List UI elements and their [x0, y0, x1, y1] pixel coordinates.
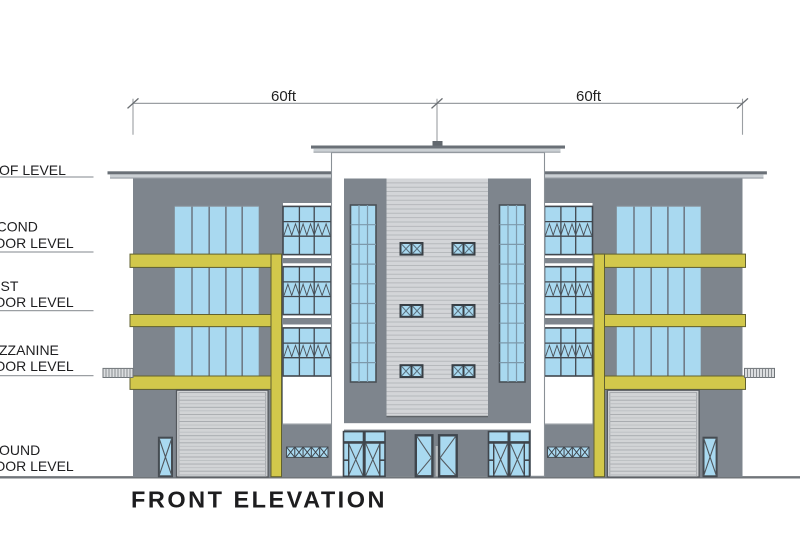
- svg-text:FIRST: FIRST: [0, 278, 19, 294]
- svg-text:FLOOR LEVEL: FLOOR LEVEL: [0, 235, 74, 251]
- svg-text:FLOOR LEVEL: FLOOR LEVEL: [0, 358, 74, 374]
- svg-text:MEZZANINE: MEZZANINE: [0, 342, 59, 358]
- svg-text:ROOF LEVEL: ROOF LEVEL: [0, 162, 66, 178]
- svg-text:SECOND: SECOND: [0, 219, 38, 235]
- svg-text:60ft: 60ft: [576, 88, 602, 105]
- svg-text:60ft: 60ft: [271, 88, 297, 105]
- svg-text:FRONT ELEVATION: FRONT ELEVATION: [131, 487, 387, 513]
- svg-text:FLOOR LEVEL: FLOOR LEVEL: [0, 294, 74, 310]
- svg-text:FLOOR LEVEL: FLOOR LEVEL: [0, 458, 74, 474]
- svg-text:GROUND: GROUND: [0, 442, 40, 458]
